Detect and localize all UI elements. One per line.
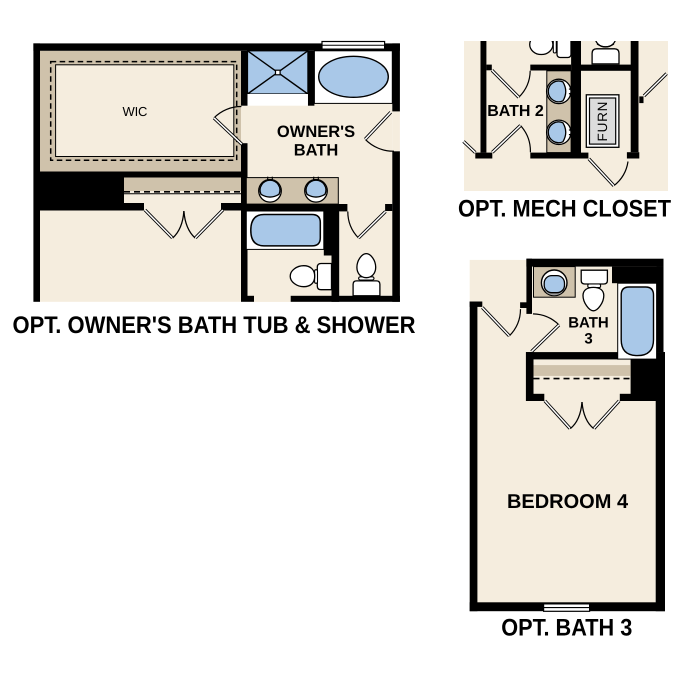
svg-text:BEDROOM 4: BEDROOM 4 [507, 491, 629, 513]
svg-text:BATH: BATH [568, 315, 609, 332]
svg-text:OPT. OWNER'S BATH TUB & SHOWER: OPT. OWNER'S BATH TUB & SHOWER [13, 312, 416, 339]
svg-text:OPT. MECH CLOSET: OPT. MECH CLOSET [458, 195, 671, 222]
svg-text:OWNER'S: OWNER'S [277, 123, 355, 141]
svg-text:BATH 2: BATH 2 [487, 103, 544, 120]
svg-text:BATH: BATH [294, 142, 339, 160]
svg-text:3: 3 [584, 331, 592, 348]
svg-text:OPT. BATH 3: OPT. BATH 3 [501, 615, 632, 642]
svg-text:WIC: WIC [123, 104, 148, 119]
svg-text:FURN: FURN [595, 101, 610, 142]
